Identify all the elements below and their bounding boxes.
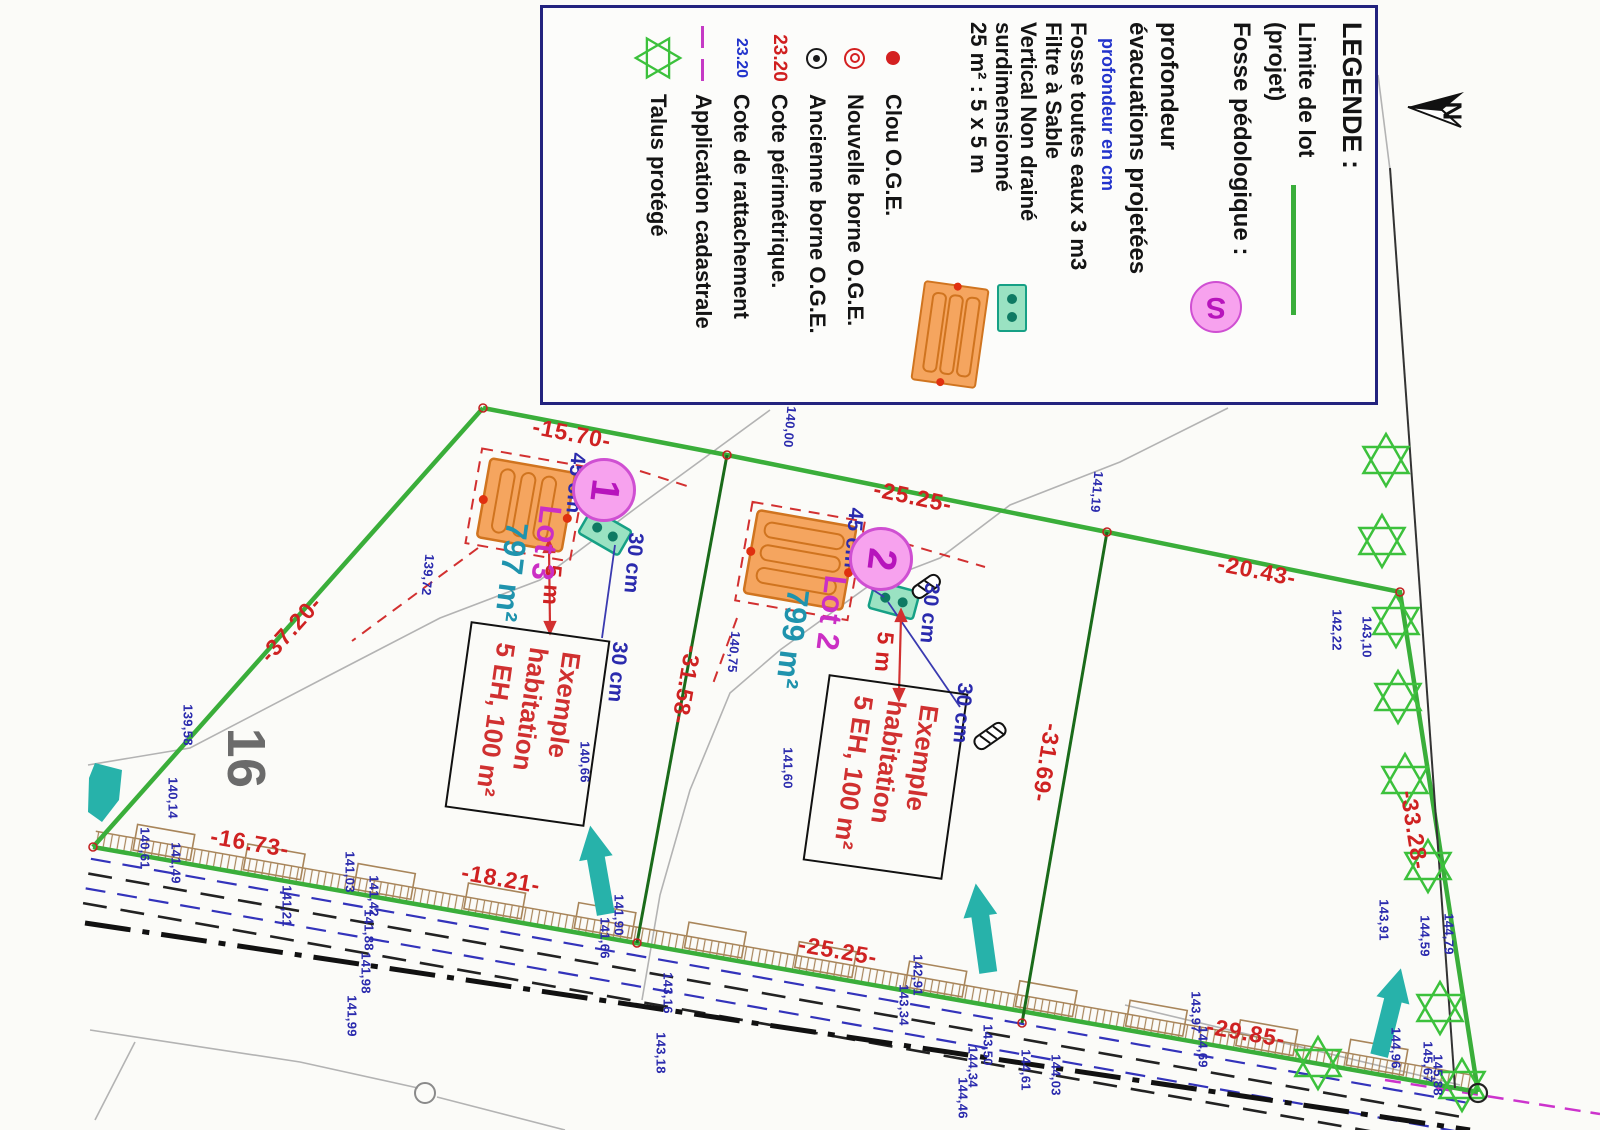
cote-perimetrique-value: 23.20: [768, 34, 790, 82]
nouvelle-borne-icon: [845, 48, 866, 69]
legend-item-cote-rattachement: 23.20 Cote de rattachement: [723, 22, 759, 394]
example-house-lot2: Exemple habitation 5 EH, 100 m²: [803, 674, 969, 880]
legend-item-limite: Limite de lot (projet): [1262, 22, 1322, 394]
example-house-lot3: Exemple habitation 5 EH, 100 m²: [445, 621, 611, 827]
plot-boundary: [93, 408, 1478, 1092]
fosse-eaux-line: surdimensionné: [991, 22, 1016, 270]
fosse-pedologique-2: 2: [849, 527, 913, 591]
culvert-icon: [972, 721, 1008, 752]
nouvelle-borne-label: Nouvelle borne O.G.E.: [842, 94, 868, 326]
prof-label2: évacuations projetées: [1122, 22, 1153, 394]
cadastral-plan: 140,00141,19139,72140,75141,60142,22143,…: [0, 0, 1600, 1130]
fosse-pedologique-1: 1: [572, 458, 636, 522]
limite-label: Limite de lot: [1292, 22, 1322, 157]
application-dash-icon: [702, 26, 705, 90]
legend-item-application: Application cadastrale: [685, 22, 721, 394]
legend-item-profondeur: profondeur évacuations projetées profond…: [1097, 22, 1184, 394]
fosse-eaux-line: Fosse toutes eaux 3 m3: [1066, 22, 1091, 270]
limite-line-icon: [1291, 185, 1296, 315]
prof-label1: profondeur: [1153, 22, 1184, 394]
culvert-icon: [910, 572, 942, 600]
legend-item-ancienne-borne: Ancienne borne O.G.E.: [799, 22, 835, 394]
fosse-eaux-line: Vertical Non drainé: [1016, 22, 1041, 270]
legend-item-fosse-eaux: Fosse toutes eaux 3 m3 Filtre à Sable Ve…: [917, 22, 1091, 394]
clou-label: Clou O.G.E.: [880, 94, 906, 216]
adjacent-parcel-number: 16: [215, 728, 277, 789]
clou-icon: [886, 51, 900, 65]
talus-star-icon: [633, 33, 683, 83]
ditch-patch: [88, 763, 122, 822]
legend-item-nouvelle-borne: Nouvelle borne O.G.E.: [837, 22, 873, 394]
prof-note: profondeur en cm: [1097, 38, 1118, 394]
legend-panel: LEGENDE : Limite de lot (projet) Fosse p…: [540, 8, 1375, 405]
talus-label: Talus protégé: [645, 94, 671, 237]
sand-filter-icon: [910, 280, 989, 389]
ancienne-borne-label: Ancienne borne O.G.E.: [804, 94, 830, 334]
fosse-pedo-label: Fosse pédologique :: [1226, 22, 1256, 255]
legend-item-cote-perimetrique: 23.20 Cote périmétrique.: [761, 22, 797, 394]
fosse-eaux-line: 25 m² : 5 x 5 m: [966, 22, 991, 270]
legend-title: LEGENDE :: [1336, 22, 1367, 394]
legend-item-fosse-pedo: Fosse pédologique : S: [1190, 22, 1256, 394]
manhole-icon: [415, 1083, 435, 1103]
septic-tank-icon: [997, 284, 1027, 332]
cadastral-limit-line: [1390, 168, 1455, 1088]
cote-rattachement-value: 23.20: [732, 38, 750, 78]
application-label: Application cadastrale: [690, 94, 716, 329]
cote-rattachement-label: Cote de rattachement: [728, 94, 754, 319]
legend-item-talus: Talus protégé: [633, 22, 683, 394]
legend-item-clou: Clou O.G.E.: [875, 22, 911, 394]
fosse-pedo-icon: S: [1190, 281, 1242, 333]
fosse-eaux-line: Filtre à Sable: [1041, 22, 1066, 270]
ancienne-borne-icon: [807, 48, 828, 69]
legend-box: LEGENDE : Limite de lot (projet) Fosse p…: [540, 5, 1378, 405]
road-strip: [83, 817, 1477, 1130]
north-label: N: [1437, 101, 1468, 120]
cote-perimetrique-label: Cote périmétrique.: [766, 94, 792, 288]
limite-label2: (projet): [1262, 22, 1292, 157]
